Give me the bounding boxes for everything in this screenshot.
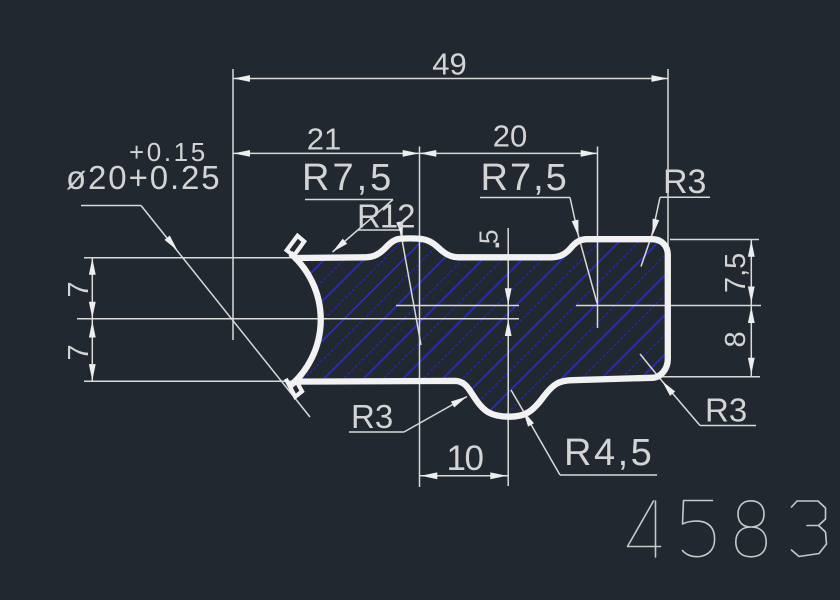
svg-text:20: 20 [493, 119, 527, 154]
svg-text:R12: R12 [357, 198, 415, 235]
svg-text:ø20+0.25: ø20+0.25 [66, 159, 222, 196]
svg-text:49: 49 [432, 47, 466, 82]
svg-text:7: 7 [63, 281, 95, 297]
svg-text:7: 7 [63, 344, 95, 360]
svg-text:R3: R3 [705, 392, 747, 429]
svg-text:R7,5: R7,5 [302, 157, 394, 199]
svg-text:21: 21 [307, 122, 341, 157]
svg-text:R7,5: R7,5 [481, 157, 569, 199]
svg-text:R3: R3 [351, 398, 393, 435]
svg-text:R4,5: R4,5 [564, 432, 654, 474]
svg-text:10: 10 [447, 439, 484, 478]
svg-text:7,5: 7,5 [720, 253, 752, 293]
svg-text:8: 8 [720, 331, 752, 347]
svg-text:R3: R3 [663, 163, 706, 201]
svg-text:5: 5 [474, 230, 504, 244]
